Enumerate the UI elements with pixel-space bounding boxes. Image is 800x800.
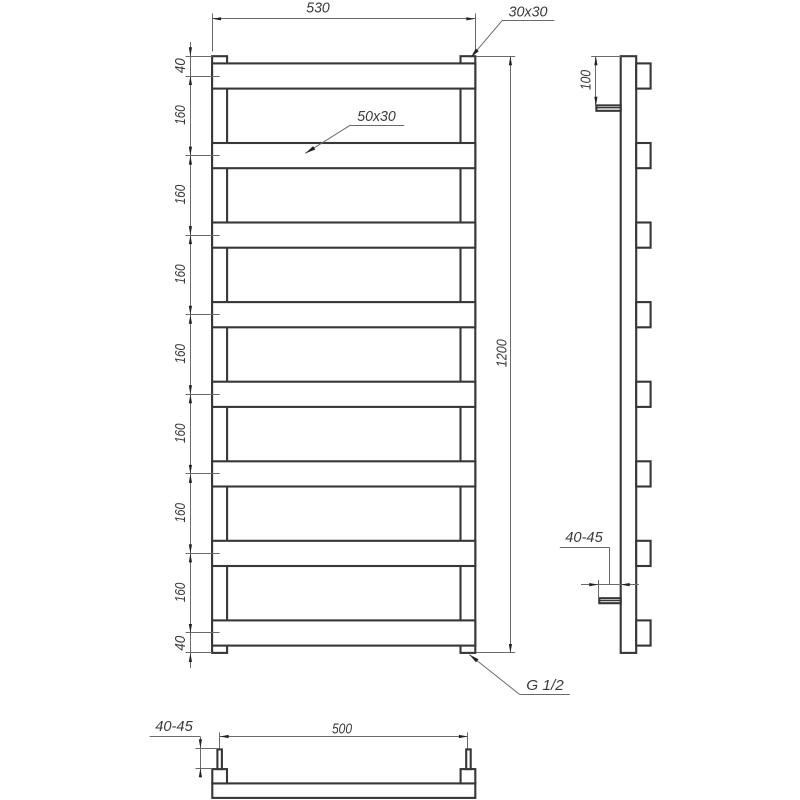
svg-text:160: 160 xyxy=(172,582,189,602)
svg-text:160: 160 xyxy=(172,344,189,364)
svg-text:100: 100 xyxy=(577,70,594,90)
svg-text:160: 160 xyxy=(172,503,189,523)
svg-text:160: 160 xyxy=(172,105,189,125)
svg-text:40-45: 40-45 xyxy=(155,718,193,735)
svg-text:30x30: 30x30 xyxy=(509,4,549,21)
svg-text:40-45: 40-45 xyxy=(565,529,603,546)
svg-text:500: 500 xyxy=(332,720,352,737)
svg-text:530: 530 xyxy=(306,0,330,17)
svg-text:40: 40 xyxy=(172,58,189,73)
svg-text:50x30: 50x30 xyxy=(357,108,396,125)
svg-text:G 1/2: G 1/2 xyxy=(526,677,564,694)
svg-text:40: 40 xyxy=(172,635,189,650)
svg-text:160: 160 xyxy=(172,264,189,284)
svg-text:160: 160 xyxy=(172,184,189,204)
svg-text:160: 160 xyxy=(172,423,189,443)
svg-text:1200: 1200 xyxy=(493,339,510,367)
